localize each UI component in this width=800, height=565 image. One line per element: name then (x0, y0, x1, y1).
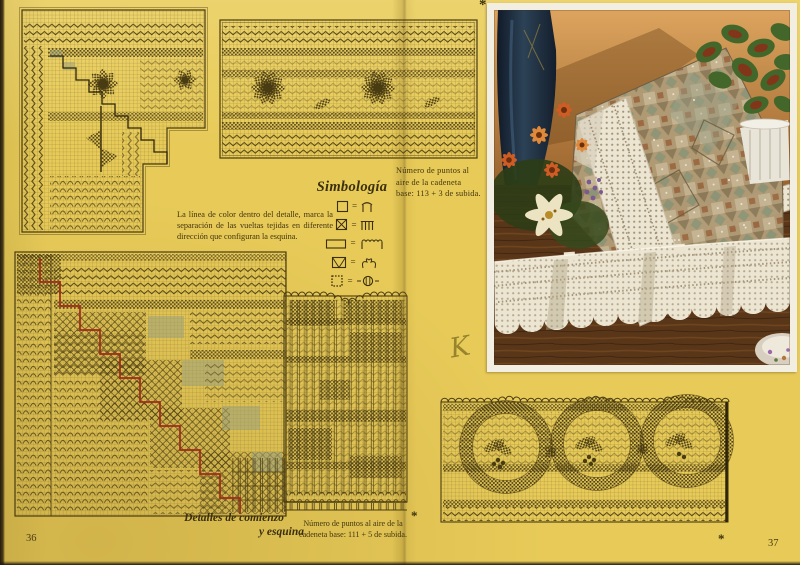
popcorn-cluster-icon (356, 274, 380, 288)
equals-sign: = (351, 220, 356, 230)
equals-sign: = (352, 201, 357, 211)
page-number-left: 36 (26, 533, 37, 544)
equals-sign: = (350, 257, 355, 267)
asterisk-middle: * (411, 508, 418, 524)
legend-row-fan: = (305, 253, 405, 272)
v-square-icon (331, 256, 347, 269)
chart-edging-vertical-center (284, 292, 407, 510)
scan-edge-bottom (0, 561, 800, 565)
four-posts-icon (360, 218, 375, 231)
base-chain-note-top: Número de puntos al aire de la cadeneta … (396, 165, 492, 200)
caption-line: Detalles de comienzo (184, 512, 284, 524)
chart-border-top-center (220, 20, 477, 158)
color-line-note: La línea de color dentro del detalle, ma… (177, 210, 333, 242)
caption-line: y esquina (150, 526, 318, 540)
open-square-icon (336, 200, 349, 213)
legend-row-popcorn: = (305, 271, 405, 290)
note-line: base: 113 + 3 de subida. (396, 188, 492, 200)
equals-sign: = (350, 238, 355, 248)
two-posts-chain-arch-icon (360, 200, 374, 213)
crossed-square-icon (335, 218, 348, 231)
scan-edge-left (0, 0, 5, 565)
dotted-square-icon (330, 274, 344, 288)
chart-corner-top-left (20, 8, 208, 235)
detail-caption: Detalles de comienzo y esquina (150, 512, 318, 540)
posts-chain-loops-icon (359, 237, 385, 250)
photo-illustration (494, 10, 790, 365)
symbology-title: Simbología (297, 179, 407, 196)
fan-arch-pair-icon (359, 256, 379, 269)
asterisk-top: * (479, 0, 487, 14)
chart-corner-bottom-left (15, 252, 286, 516)
photo-frame (487, 3, 797, 372)
equals-sign: = (347, 276, 352, 286)
note-line: aire de la cadeneta (396, 177, 492, 189)
magazine-spread: Simbología = = = = = La línea de color d (0, 0, 800, 565)
asterisk-bottom-right: * (718, 531, 725, 547)
note-line: Número de puntos al (396, 165, 492, 177)
page-number-right: 37 (768, 538, 779, 549)
chart-border-bottom-right (441, 395, 734, 523)
